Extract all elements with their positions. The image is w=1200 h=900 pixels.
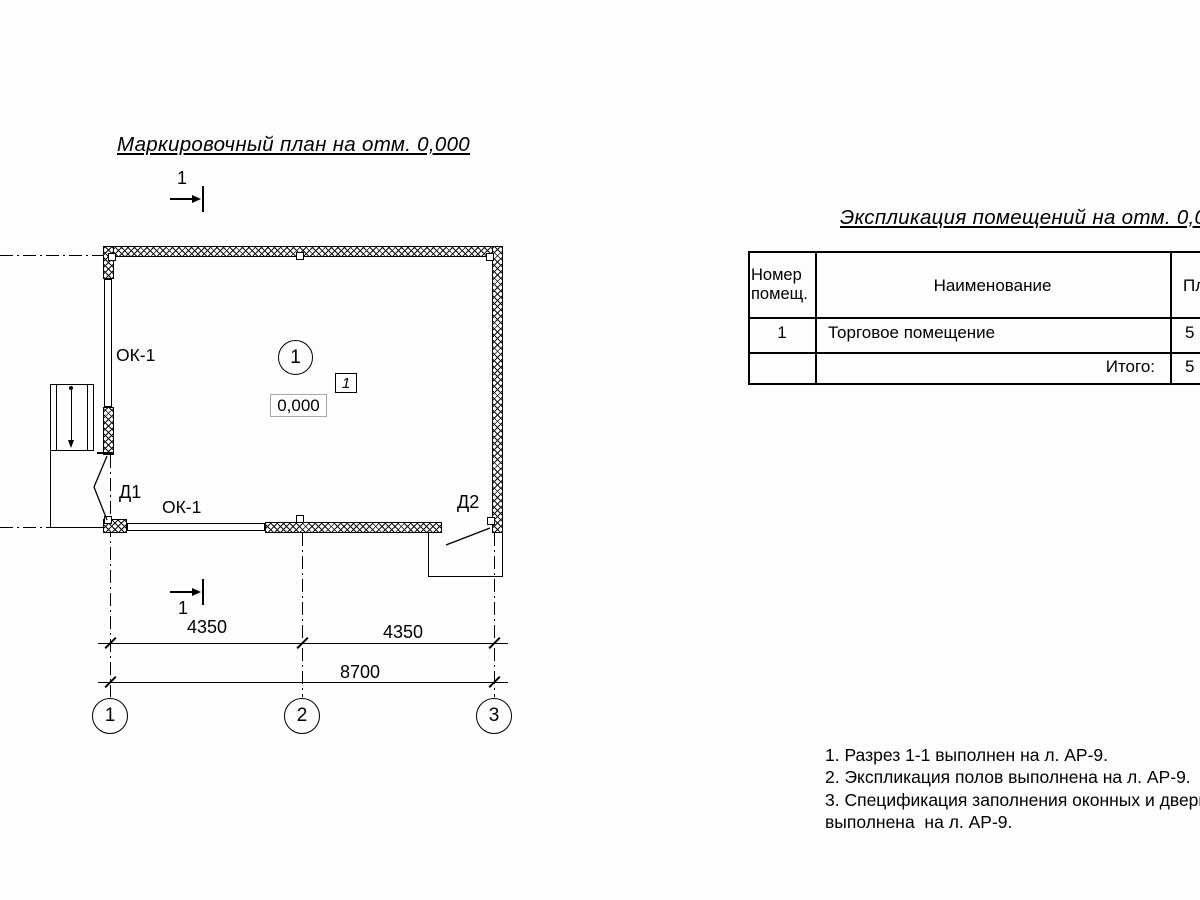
explication-header-divider	[748, 317, 1200, 319]
explication-total-label: Итого:	[817, 357, 1155, 377]
explication-row-area: 5	[1185, 323, 1194, 343]
explication-col-header-name: Наименование	[817, 276, 1168, 296]
door1-label: Д1	[119, 482, 141, 503]
section-cut-bottom-cut-bar	[202, 579, 204, 605]
axis-number-2: 2	[297, 705, 308, 727]
elevation-mark-box: 0,000	[270, 394, 327, 417]
dim-line-total	[98, 682, 508, 683]
note-line-2: 2. Экспликация полов выполнена на л. АР-…	[825, 767, 1191, 788]
section-cut-bottom-arrowhead-icon	[192, 588, 201, 596]
axis-circle-3: 3	[476, 698, 512, 734]
dim-label-span-2-3: 4350	[383, 622, 423, 643]
drawing-sheet: { "colors": { "ink": "#000000", "paper":…	[0, 0, 1200, 900]
axis-circle-2: 2	[284, 698, 320, 734]
note-line-4: выполнена на л. АР-9.	[825, 812, 1012, 833]
door2-label: Д2	[457, 492, 479, 513]
explication-row-number: 1	[750, 323, 814, 343]
explication-total-area: 5	[1185, 357, 1194, 377]
elevation-value: 0,000	[277, 396, 320, 416]
window-left-label: ОК-1	[116, 345, 155, 366]
explication-col-header-area: Площадь, м²	[1183, 276, 1200, 296]
explication-row-name: Торговое помещение	[828, 323, 995, 343]
dim-label-total: 8700	[340, 662, 380, 683]
axis-circle-1: 1	[92, 698, 128, 734]
explication-row-divider	[748, 352, 1200, 354]
room-box-tag-number: 1	[342, 375, 350, 392]
explication-col-header-number: Номер помещ.	[751, 266, 813, 304]
window-bottom-label: ОК-1	[162, 497, 201, 518]
axis-number-1: 1	[105, 705, 116, 727]
room-number-circle: 1	[278, 340, 313, 375]
section-cut-bottom-label: 1	[178, 598, 188, 619]
room-number: 1	[290, 347, 301, 369]
note-line-3: 3. Спецификация заполнения оконных и две…	[825, 790, 1200, 811]
note-line-1: 1. Разрез 1-1 выполнен на л. АР-9.	[825, 745, 1108, 766]
explication-title: Экспликация помещений на отм. 0,000	[840, 206, 1200, 230]
axis-number-3: 3	[489, 705, 500, 727]
room-box-tag: 1	[335, 373, 357, 393]
dim-label-span-1-2: 4350	[187, 617, 227, 638]
